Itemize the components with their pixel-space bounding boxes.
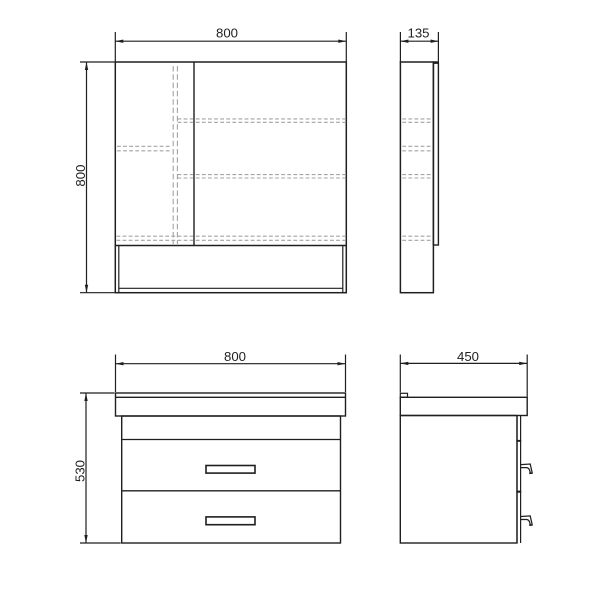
svg-text:450: 450 — [457, 349, 479, 364]
svg-text:800: 800 — [216, 26, 238, 41]
svg-text:530: 530 — [73, 460, 88, 482]
svg-text:800: 800 — [224, 349, 246, 364]
svg-text:135: 135 — [407, 26, 429, 41]
svg-text:800: 800 — [73, 165, 88, 187]
